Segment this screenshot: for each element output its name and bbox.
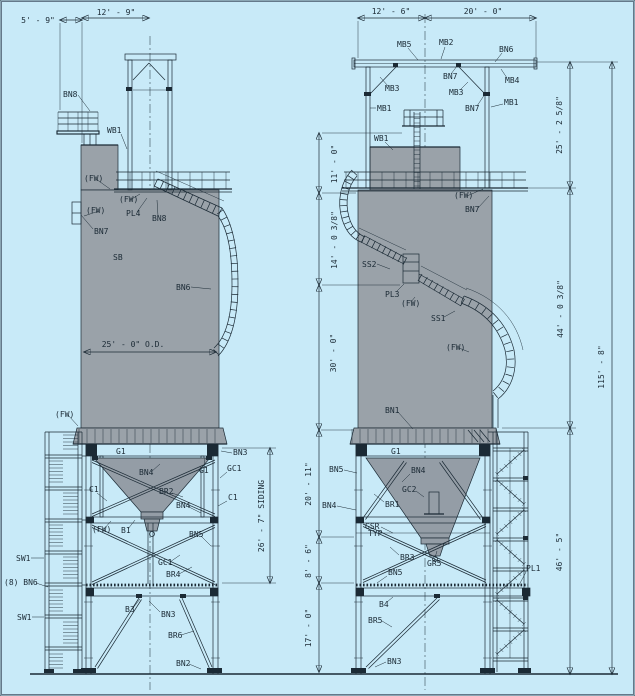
label-mb1: MB1 [377,104,392,113]
label-pl4: PL4 [126,209,141,218]
label-b4: B4 [379,600,389,609]
leader-line [221,451,232,453]
label-300: 30' - 0" [329,334,338,373]
label-bn7: BN7 [465,104,480,113]
label-bn6: BN6 [176,283,191,292]
label-mb1: MB1 [504,98,519,107]
headframe-front [125,54,176,190]
drawing-sheet: 5' - 9"12' - 9"12' - 6"20' - 0"BN8WB1(FW… [0,0,635,696]
tower-treads [49,590,63,611]
label-bn6: BN6 [499,45,514,54]
bn8-posts [58,112,98,131]
base-plate [351,668,366,673]
label-129: 12' - 9" [97,8,136,17]
column-splices [84,490,93,658]
label-fw: (FW) [401,299,420,308]
label-fw: (FW) [86,206,105,215]
label-br5: BR5 [368,616,383,625]
leader-line [78,95,90,111]
label-ss2: SS2 [362,260,377,269]
label-fw: (FW) [84,174,103,183]
leader-line [382,621,392,627]
label-mb5: MB5 [397,40,412,49]
leader-line [189,664,201,669]
label-86: 8' - 6" [304,544,313,578]
label-mb4: MB4 [505,76,520,85]
label-bn8: BN8 [63,90,78,99]
label-br4: BR4 [166,570,181,579]
label-br3: BR3 [400,553,415,562]
label-1158: 115' - 8" [597,345,606,388]
tower-treads [49,525,63,546]
label-14038: 14' - 0 3/8" [330,211,339,269]
label-b1: B1 [121,526,131,535]
label-br1: BR1 [385,500,400,509]
stair-tower-side [488,432,531,673]
label-mb3: MB3 [385,84,400,93]
label-sw1: SW1 [16,554,31,563]
label-gr5: GR5 [427,559,442,568]
leader-line [408,48,418,60]
label-g1: G1 [391,447,401,456]
label-bn8: BN8 [152,214,167,223]
leader-line [121,134,127,149]
label-gc1: GC1 [158,558,173,567]
label-465: 46' - 5" [555,533,564,572]
label-wb1: WB1 [107,126,122,135]
leader-line [495,53,502,62]
label-c1: C1 [228,493,238,502]
label-200: 20' - 0" [464,7,503,16]
label-c1: C1 [89,485,99,494]
label-g1: G1 [199,466,209,475]
leader-line [97,493,107,501]
label-g1: G1 [116,447,126,456]
label-ss1: SS1 [431,314,446,323]
label-b3: B3 [125,605,135,614]
label-bn5: BN5 [329,465,344,474]
tower-landings [493,451,528,661]
silo-skirt [73,428,227,444]
label-bn4: BN4 [411,466,426,475]
label-59: 5' - 9" [21,16,55,25]
label-mb3: MB3 [449,88,464,97]
label-25258: 25' - 2 5/8" [555,96,564,154]
label-bn4: BN4 [322,501,337,510]
label-170: 17' - 0" [304,609,313,648]
silo-body-front [73,145,227,444]
support-frame-front [81,444,222,674]
leader-line [337,506,356,510]
leader-line [220,472,227,478]
headhouse [370,147,460,190]
label-sb: SB [113,253,123,262]
leader-line [218,501,227,506]
label-8bn6: (8) BN6 [4,578,38,587]
label-typ: TYP [368,529,383,538]
label-bn5: BN5 [189,530,204,539]
leader-line [149,601,160,612]
label-mb2: MB2 [439,38,454,47]
silo-elevation-drawing: 5' - 9"12' - 9"12' - 6"20' - 0"BN8WB1(FW… [0,0,635,696]
label-fw: (FW) [454,191,473,200]
column-splices [483,490,492,658]
label-bn3: BN3 [387,657,402,666]
label-br2: BR2 [159,487,174,496]
leader-line [344,470,357,473]
label-44038: 44' - 0 3/8" [556,280,565,338]
label-fw: (FW) [119,195,138,204]
label-bn5: BN5 [388,568,403,577]
label-sw1: SW1 [17,613,32,622]
base-plate [518,668,531,673]
label-bn3: BN3 [233,448,248,457]
side-elevation-view [340,14,537,690]
leader-line [381,527,393,533]
tower-treads [63,557,78,578]
tower-treads [63,622,78,643]
tower-treads [49,461,63,482]
label-bn1: BN1 [385,406,400,415]
leader-line [491,104,503,107]
label-bn4: BN4 [176,501,191,510]
brace-br5 [366,598,440,669]
base-plate [81,668,96,673]
label-pl3: PL3 [385,290,400,299]
label-bn3: BN3 [161,610,176,619]
leader-line [181,631,194,635]
brace-br6 [180,598,213,669]
column-splices [354,490,363,658]
label-bn4: BN4 [139,468,154,477]
leader-line [390,547,399,555]
label-110: 11' - 0" [330,145,339,184]
label-bn7: BN7 [94,227,109,236]
leader-line [441,47,445,59]
label-gc2: GC2 [402,485,417,494]
label-fw: (FW) [446,343,465,352]
wall-bracket [72,202,81,224]
label-126: 12' - 6" [372,7,411,16]
label-bn7: BN7 [465,205,480,214]
front-elevation-view [44,36,238,690]
leader-line [377,576,387,583]
label-fw: (FW) [92,525,111,534]
tower-treads [63,493,78,514]
label-wb1: WB1 [374,134,389,143]
label-pl1: PL1 [526,564,541,573]
base-plate [207,668,222,673]
label-2011: 20' - 11" [304,462,313,505]
hopper-pipe [429,492,439,514]
leader-line [36,583,48,587]
label-br6: BR6 [168,631,183,640]
label-bn7: BN7 [443,72,458,81]
tower-landings [493,448,528,658]
label-267siding: 26' - 7" SIDING [257,480,266,552]
label-gc1: GC1 [227,464,242,473]
label-fw: (FW) [55,410,74,419]
label-250od: 25' - 0" O.D. [102,340,165,349]
leader-line [375,662,386,667]
tower-treads [49,654,63,668]
label-bn2: BN2 [176,659,191,668]
